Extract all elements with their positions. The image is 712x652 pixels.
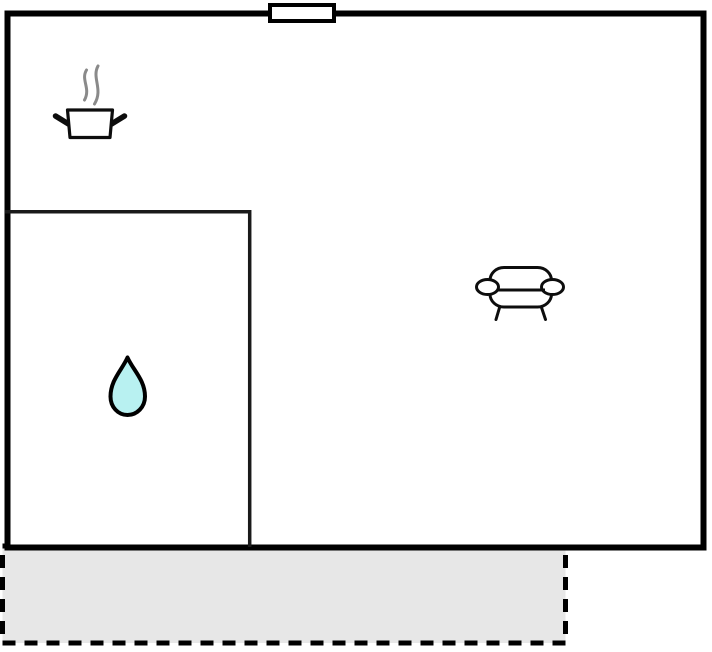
window-marker [270,5,334,21]
terrace-area [3,546,566,643]
floorplan-canvas [0,0,712,652]
floorplan-svg [0,0,712,652]
pot-body [68,110,113,138]
main-room-walls [8,14,704,548]
steam-line-left [85,70,87,100]
sofa-armrest-left [477,280,499,295]
sofa-armrest-right [542,280,564,295]
